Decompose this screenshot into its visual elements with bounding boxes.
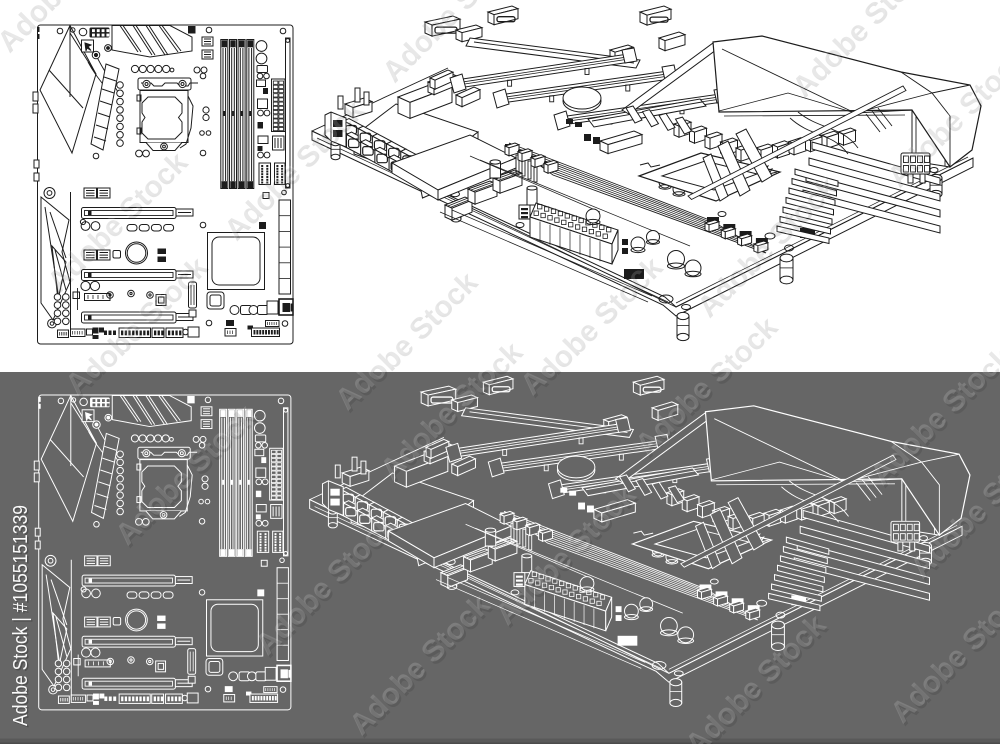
svg-text:Adobe Stock | #1055151339: Adobe Stock | #1055151339 — [10, 505, 32, 726]
